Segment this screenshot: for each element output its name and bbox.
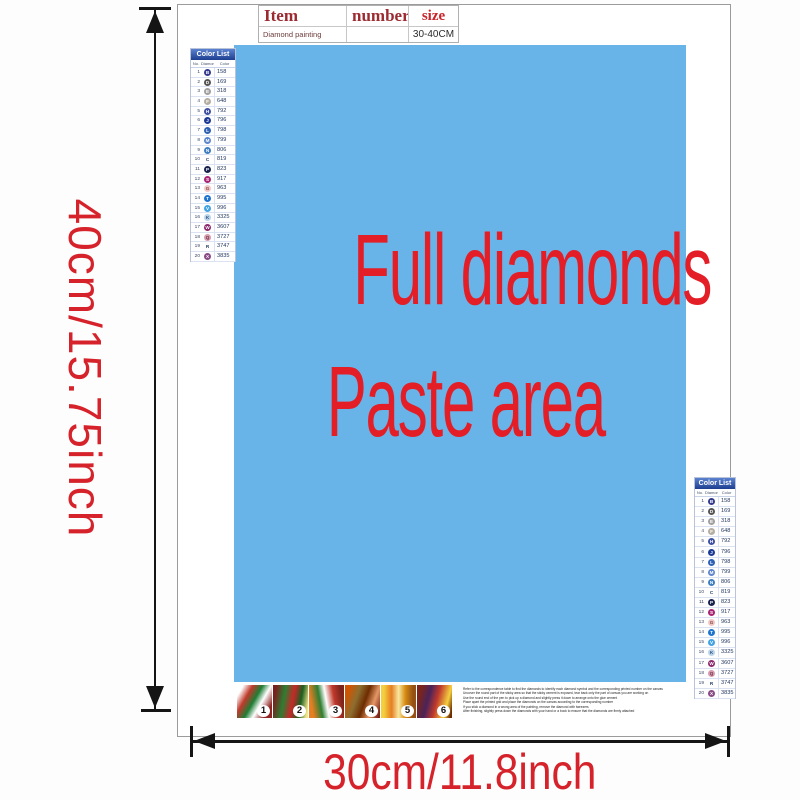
- color-list-right: Color List No. Diamond Color 1 B 158 2 D…: [694, 477, 736, 699]
- table-cell-size: 30-40CM: [409, 27, 458, 42]
- diamond-symbol-icon: C: [708, 589, 715, 596]
- color-row-number: 15: [695, 640, 705, 645]
- color-list-row: 14 T 995: [191, 194, 235, 204]
- step-number-badge: 6: [437, 705, 450, 717]
- instruction-line: After finishing, slightly press down the…: [463, 709, 723, 713]
- color-code: 796: [214, 116, 235, 125]
- diamond-symbol-icon: C: [204, 156, 211, 163]
- color-code: 169: [718, 507, 735, 516]
- step-number-badge: 4: [365, 705, 378, 717]
- color-list-row: 3 E 318: [191, 87, 235, 97]
- color-list-row: 5 H 792: [191, 107, 235, 117]
- color-code: 3747: [214, 242, 235, 251]
- horizontal-dim-line: [193, 740, 727, 743]
- color-code: 819: [214, 155, 235, 164]
- color-list-row: 16 K 3325: [191, 213, 235, 223]
- color-row-number: 13: [695, 620, 705, 625]
- color-list-row: 4 F 648: [695, 527, 735, 537]
- color-code: 963: [718, 618, 735, 627]
- diamond-symbol-icon: G: [708, 619, 715, 626]
- color-code: 648: [214, 97, 235, 106]
- color-row-number: 4: [695, 529, 705, 534]
- color-code: 3835: [214, 252, 235, 261]
- step-thumbnail: 6: [417, 685, 452, 718]
- table-cell-item: Diamond painting: [259, 27, 347, 42]
- diamond-symbol-icon: D: [204, 79, 211, 86]
- color-code: 318: [718, 517, 735, 526]
- color-row-number: 9: [191, 148, 201, 153]
- diamond-symbol-icon: M: [708, 569, 715, 576]
- color-row-number: 16: [695, 650, 705, 655]
- color-code: 823: [214, 165, 235, 174]
- color-row-number: 2: [695, 509, 705, 514]
- color-code: 995: [214, 194, 235, 203]
- color-row-number: 11: [695, 600, 705, 605]
- color-code: 823: [718, 598, 735, 607]
- color-list-row: 10 C 819: [695, 588, 735, 598]
- col-no-label: No.: [191, 60, 201, 67]
- color-list-row: 1 B 158: [695, 497, 735, 507]
- color-row-number: 14: [191, 196, 201, 201]
- color-code: 963: [214, 184, 235, 193]
- color-row-number: 12: [695, 610, 705, 615]
- diamond-symbol-icon: L: [708, 559, 715, 566]
- diamond-symbol-icon: W: [204, 224, 211, 231]
- height-dimension-label: 40cm/15.75inch: [60, 158, 110, 578]
- color-code: 158: [214, 68, 235, 77]
- color-code: 996: [214, 204, 235, 213]
- diamond-symbol-icon: H: [204, 108, 211, 115]
- diamond-symbol-icon: J: [708, 549, 715, 556]
- diamond-symbol-icon: Q: [708, 670, 715, 677]
- color-row-number: 19: [695, 681, 705, 686]
- color-list-right-rows: 1 B 158 2 D 169 3 E 318 4 F 648 5 H 792 …: [695, 497, 735, 699]
- color-list-right-title: Color List: [695, 478, 735, 489]
- color-list-row: 9 N 806: [191, 146, 235, 156]
- color-code: 3727: [214, 233, 235, 242]
- product-image: Full diamonds Paste area Item number siz…: [0, 0, 800, 800]
- diamond-symbol-icon: V: [708, 639, 715, 646]
- color-code: 819: [718, 588, 735, 597]
- diamond-symbol-icon: K: [708, 649, 715, 656]
- color-list-row: 3 E 318: [695, 517, 735, 527]
- color-list-right-subheader: No. Diamond Color: [695, 489, 735, 497]
- color-list-row: 1 B 158: [191, 68, 235, 78]
- color-row-number: 6: [695, 550, 705, 555]
- diamond-symbol-icon: X: [204, 253, 211, 260]
- color-list-row: 8 M 799: [191, 136, 235, 146]
- color-code: 917: [214, 175, 235, 184]
- col-diamond-label: Diamond: [705, 489, 718, 496]
- color-row-number: 2: [191, 80, 201, 85]
- table-header-item: Item: [259, 6, 347, 27]
- item-info-table: Item number size Diamond painting 30-40C…: [258, 5, 459, 43]
- table-cell-number: [347, 27, 409, 42]
- color-row-number: 5: [695, 539, 705, 544]
- color-list-row: 15 V 996: [695, 638, 735, 648]
- color-row-number: 1: [695, 499, 705, 504]
- color-list-row: 18 Q 3727: [191, 233, 235, 243]
- color-code: 648: [718, 527, 735, 536]
- color-list-row: 20 X 3835: [191, 252, 235, 262]
- step-thumbnail: 1: [237, 685, 272, 718]
- diamond-symbol-icon: S: [204, 176, 211, 183]
- color-code: 917: [718, 608, 735, 617]
- color-list-left: Color List No. Diamond Color 1 B 158 2 D…: [190, 48, 236, 262]
- diamond-symbol-icon: W: [708, 660, 715, 667]
- color-list-row: 14 T 995: [695, 628, 735, 638]
- color-list-row: 5 H 792: [695, 537, 735, 547]
- step-thumbnail: 4: [345, 685, 380, 718]
- color-row-number: 18: [191, 235, 201, 240]
- color-list-row: 8 M 799: [695, 568, 735, 578]
- color-list-row: 13 G 963: [191, 184, 235, 194]
- col-color-label: Color: [718, 489, 735, 496]
- table-header-number: number: [347, 6, 409, 27]
- paste-area-title-line1-text: Full diamonds: [353, 220, 711, 320]
- diamond-symbol-icon: H: [708, 538, 715, 545]
- instruction-text-block: Refer to the correspondence table to fin…: [463, 687, 723, 713]
- color-code: 158: [718, 497, 735, 506]
- color-code: 796: [718, 548, 735, 557]
- horizontal-dim-right-cap: [727, 726, 730, 757]
- diamond-symbol-icon: F: [708, 528, 715, 535]
- color-row-number: 11: [191, 167, 201, 172]
- color-row-number: 8: [191, 138, 201, 143]
- col-diamond-label: Diamond: [201, 60, 214, 67]
- color-row-number: 7: [191, 128, 201, 133]
- color-code: 318: [214, 87, 235, 96]
- color-code: 3727: [718, 669, 735, 678]
- diamond-symbol-icon: P: [708, 599, 715, 606]
- color-row-number: 16: [191, 215, 201, 220]
- diamond-symbol-icon: R: [708, 680, 715, 687]
- color-row-number: 10: [695, 590, 705, 595]
- vertical-dim-line: [154, 10, 156, 710]
- color-list-row: 17 W 3607: [695, 659, 735, 669]
- color-code: 3607: [718, 659, 735, 668]
- color-code: 3325: [214, 213, 235, 222]
- color-list-row: 11 P 823: [191, 165, 235, 175]
- vertical-dim-bottom-cap: [141, 709, 171, 712]
- color-row-number: 17: [191, 225, 201, 230]
- color-list-row: 17 W 3607: [191, 223, 235, 233]
- color-list-row: 6 J 796: [695, 547, 735, 557]
- color-row-number: 19: [191, 244, 201, 249]
- color-row-number: 15: [191, 206, 201, 211]
- color-code: 3325: [718, 648, 735, 657]
- color-row-number: 3: [695, 519, 705, 524]
- diamond-symbol-icon: Q: [204, 234, 211, 241]
- color-row-number: 18: [695, 671, 705, 676]
- color-row-number: 7: [695, 560, 705, 565]
- diamond-symbol-icon: F: [204, 98, 211, 105]
- color-list-row: 4 F 648: [191, 97, 235, 107]
- step-thumbnail: 2: [273, 685, 308, 718]
- color-code: 792: [214, 107, 235, 116]
- color-row-number: 4: [191, 99, 201, 104]
- paste-area-title-line2-text: Paste area: [327, 352, 605, 452]
- paste-area-title-line1: Full diamonds: [234, 220, 686, 320]
- step-number-badge: 3: [329, 705, 342, 717]
- width-dimension-label: 30cm/11.8inch: [234, 746, 686, 798]
- color-list-row: 15 V 996: [191, 204, 235, 214]
- diamond-symbol-icon: N: [204, 147, 211, 154]
- step-number-badge: 1: [257, 705, 270, 717]
- step-number-badge: 5: [401, 705, 414, 717]
- diamond-symbol-icon: N: [708, 579, 715, 586]
- color-code: 169: [214, 78, 235, 87]
- step-thumbnails: 1 2 3 4 5 6: [237, 685, 452, 718]
- color-row-number: 9: [695, 580, 705, 585]
- diamond-symbol-icon: S: [708, 609, 715, 616]
- diamond-symbol-icon: B: [708, 498, 715, 505]
- diamond-symbol-icon: L: [204, 127, 211, 134]
- color-list-row: 16 K 3325: [695, 648, 735, 658]
- color-code: 996: [718, 638, 735, 647]
- color-row-number: 8: [695, 570, 705, 575]
- color-list-row: 12 S 917: [695, 608, 735, 618]
- color-list-row: 6 J 796: [191, 116, 235, 126]
- diamond-symbol-icon: P: [204, 166, 211, 173]
- color-list-row: 10 C 819: [191, 155, 235, 165]
- paste-area-title-line2: Paste area: [234, 352, 686, 452]
- color-row-number: 13: [191, 186, 201, 191]
- color-code: 806: [718, 578, 735, 587]
- color-code: 806: [214, 146, 235, 155]
- diamond-symbol-icon: M: [204, 137, 211, 144]
- color-row-number: 5: [191, 109, 201, 114]
- diamond-symbol-icon: T: [204, 195, 211, 202]
- color-list-row: 18 Q 3727: [695, 669, 735, 679]
- color-code: 792: [718, 537, 735, 546]
- color-code: 799: [718, 568, 735, 577]
- color-code: 3607: [214, 223, 235, 232]
- diamond-symbol-icon: R: [204, 243, 211, 250]
- color-code: 798: [718, 558, 735, 567]
- color-list-row: 2 D 169: [695, 507, 735, 517]
- color-list-row: 12 S 917: [191, 175, 235, 185]
- color-list-row: 13 G 963: [695, 618, 735, 628]
- col-color-label: Color: [214, 60, 235, 67]
- diamond-symbol-icon: G: [204, 185, 211, 192]
- color-list-left-rows: 1 B 158 2 D 169 3 E 318 4 F 648 5 H 792 …: [191, 68, 235, 262]
- color-row-number: 12: [191, 177, 201, 182]
- step-number-badge: 2: [293, 705, 306, 717]
- color-row-number: 3: [191, 89, 201, 94]
- arrow-up-icon: [146, 11, 164, 33]
- width-dimension-text: 30cm/11.8inch: [323, 746, 596, 798]
- diamond-symbol-icon: T: [708, 629, 715, 636]
- color-code: 798: [214, 126, 235, 135]
- table-header-size: size: [409, 6, 458, 27]
- color-row-number: 1: [191, 70, 201, 75]
- color-list-row: 9 N 806: [695, 578, 735, 588]
- diamond-symbol-icon: E: [204, 88, 211, 95]
- color-row-number: 17: [695, 661, 705, 666]
- color-code: 995: [718, 628, 735, 637]
- diamond-symbol-icon: J: [204, 117, 211, 124]
- arrow-left-icon: [194, 733, 215, 749]
- color-list-left-subheader: No. Diamond Color: [191, 60, 235, 68]
- diamond-symbol-icon: D: [708, 508, 715, 515]
- color-list-left-title: Color List: [191, 49, 235, 60]
- diamond-symbol-icon: V: [204, 205, 211, 212]
- step-thumbnail: 3: [309, 685, 344, 718]
- col-no-label: No.: [695, 489, 705, 496]
- color-row-number: 14: [695, 630, 705, 635]
- diamond-symbol-icon: B: [204, 69, 211, 76]
- color-code: 799: [214, 136, 235, 145]
- color-list-row: 2 D 169: [191, 78, 235, 88]
- arrow-right-icon: [705, 733, 726, 749]
- color-row-number: 10: [191, 157, 201, 162]
- diamond-symbol-icon: E: [708, 518, 715, 525]
- color-row-number: 6: [191, 118, 201, 123]
- arrow-down-icon: [146, 686, 164, 708]
- color-list-row: 11 P 823: [695, 598, 735, 608]
- color-list-row: 7 L 798: [191, 126, 235, 136]
- color-list-row: 7 L 798: [695, 558, 735, 568]
- step-thumbnail: 5: [381, 685, 416, 718]
- diamond-symbol-icon: K: [204, 214, 211, 221]
- color-row-number: 20: [191, 254, 201, 259]
- color-list-row: 19 R 3747: [191, 242, 235, 252]
